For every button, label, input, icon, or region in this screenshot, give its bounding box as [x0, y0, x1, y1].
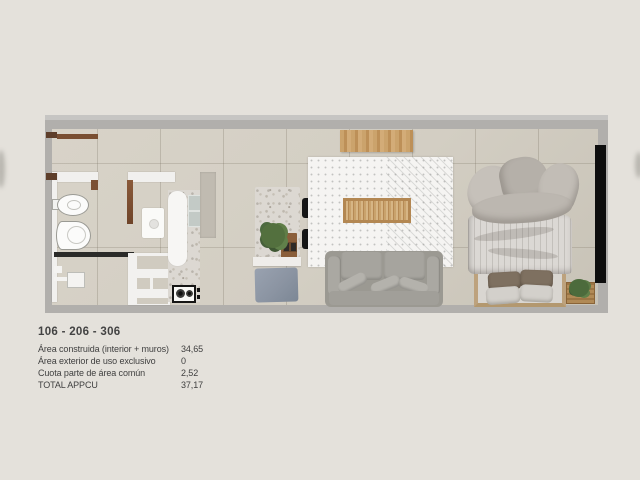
stove-knob — [197, 288, 200, 292]
info-row: Área exterior de uso exclusivo 0 — [38, 355, 298, 367]
low-shelf — [253, 257, 301, 266]
floor-plan — [45, 115, 608, 313]
scan-artifact-right — [635, 152, 640, 178]
open-door-leaf — [127, 180, 133, 224]
open-shelving-cabinet — [128, 253, 170, 305]
blue-pouf — [255, 267, 299, 302]
shower-drain-plate — [67, 272, 85, 288]
bed-pillow-light — [485, 286, 520, 305]
area-value: 34,65 — [181, 343, 203, 355]
unit-title: 106 - 206 - 306 — [38, 326, 298, 338]
area-value: 2,52 — [181, 367, 198, 379]
door-stop — [46, 173, 57, 180]
bed-pillow-light — [520, 284, 554, 303]
area-label: Área construida (interior + muros) — [38, 343, 181, 355]
area-label: Cuota parte de área común — [38, 367, 181, 379]
wall-shelf-bracket — [46, 132, 57, 138]
gas-stove — [172, 285, 196, 303]
slatted-coffee-bench — [343, 198, 411, 223]
area-label: Área exterior de uso exclusivo — [38, 355, 181, 367]
crate-plant — [569, 279, 589, 297]
washing-machine — [142, 208, 164, 238]
area-label: TOTAL APPCU — [38, 379, 181, 391]
area-value: 37,17 — [181, 379, 203, 391]
info-row: TOTAL APPCU 37,17 — [38, 379, 298, 391]
stove-knob — [197, 295, 200, 299]
shower-glass-partition — [54, 252, 134, 257]
scan-artifact-left — [0, 150, 5, 188]
page-background: 106 - 206 - 306 Área construida (interio… — [0, 0, 640, 480]
door-jamb — [91, 180, 98, 190]
kitchen-counter-front — [168, 191, 187, 266]
unit-area-table: Área construida (interior + muros) 34,65… — [38, 343, 298, 391]
bed-duvet — [466, 159, 578, 227]
shower-valve — [54, 266, 62, 273]
sofa — [325, 251, 443, 307]
kitchen-wall — [128, 172, 175, 182]
sofa-armrest — [427, 256, 440, 295]
wall-mounted-table — [340, 130, 413, 152]
wall-shelf — [57, 134, 98, 139]
potted-plant — [261, 223, 285, 248]
area-value: 0 — [181, 355, 186, 367]
sofa-backrest — [329, 291, 439, 305]
bidet — [57, 194, 89, 216]
info-row: Cuota parte de área común 2,52 — [38, 367, 298, 379]
info-row: Área construida (interior + muros) 34,65 — [38, 343, 298, 355]
unit-info: 106 - 206 - 306 Área construida (interio… — [38, 326, 298, 391]
tall-cabinet — [200, 172, 216, 238]
toilet — [56, 221, 91, 250]
wardrobe — [595, 145, 606, 283]
